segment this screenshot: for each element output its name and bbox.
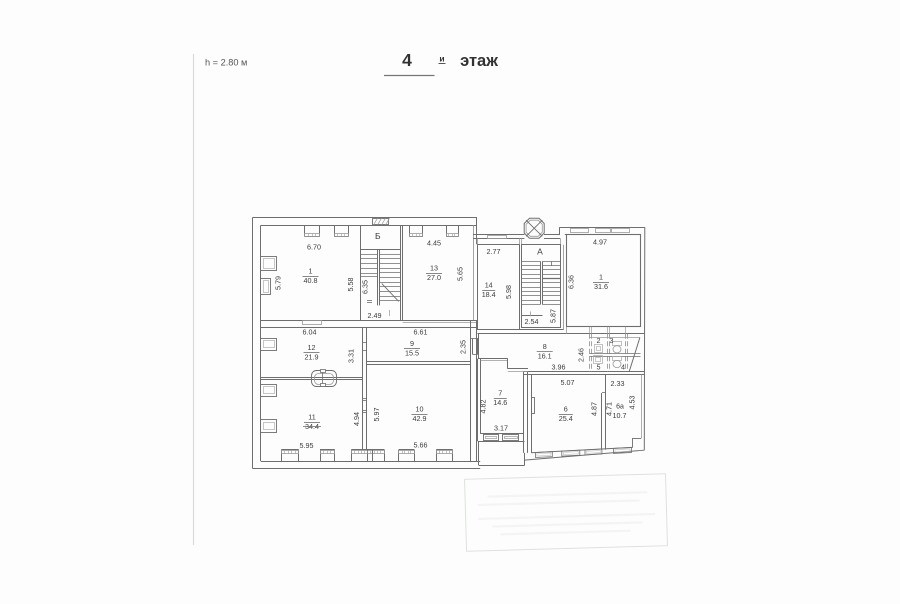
svg-text:2.77: 2.77: [487, 247, 501, 256]
svg-text:3.17: 3.17: [494, 424, 508, 433]
svg-text:10: 10: [416, 405, 424, 414]
svg-text:2.46: 2.46: [577, 348, 586, 362]
svg-text:2.54: 2.54: [525, 317, 539, 326]
svg-text:5.97: 5.97: [372, 408, 381, 422]
svg-text:12: 12: [308, 343, 316, 352]
svg-text:27.0: 27.0: [427, 273, 441, 282]
svg-text:этаж: этаж: [460, 52, 498, 70]
svg-text:7: 7: [498, 389, 502, 398]
svg-text:9: 9: [410, 339, 414, 348]
svg-text:16.1: 16.1: [538, 352, 552, 361]
svg-text:2: 2: [597, 336, 601, 345]
svg-text:31.6: 31.6: [594, 282, 608, 291]
svg-text:4: 4: [621, 363, 625, 372]
svg-text:6.35: 6.35: [361, 280, 370, 294]
svg-text:6а: 6а: [616, 404, 624, 411]
svg-text:4.87: 4.87: [590, 402, 599, 416]
svg-text:40.8: 40.8: [304, 276, 318, 285]
svg-text:14: 14: [485, 281, 493, 290]
svg-text:5.95: 5.95: [300, 441, 314, 450]
svg-text:15.5: 15.5: [405, 349, 419, 358]
svg-text:8: 8: [543, 342, 547, 351]
svg-text:3.31: 3.31: [347, 349, 356, 363]
svg-text:10.7: 10.7: [613, 411, 627, 420]
svg-text:1: 1: [599, 273, 603, 282]
svg-text:6.36: 6.36: [567, 275, 576, 289]
svg-text:А: А: [537, 247, 543, 257]
svg-text:3.96: 3.96: [552, 363, 566, 372]
svg-text:6.04: 6.04: [303, 328, 317, 337]
svg-text:5.65: 5.65: [456, 267, 465, 281]
svg-text:13: 13: [430, 264, 438, 273]
svg-text:4: 4: [402, 50, 412, 70]
svg-text:14.6: 14.6: [493, 398, 507, 407]
svg-text:5: 5: [597, 363, 601, 372]
svg-text:5.58: 5.58: [346, 278, 355, 292]
svg-text:2.49: 2.49: [368, 311, 382, 320]
svg-text:5.79: 5.79: [274, 276, 283, 290]
svg-text:3: 3: [610, 336, 614, 345]
svg-text:5.87: 5.87: [549, 309, 558, 323]
svg-text:4.94: 4.94: [352, 412, 361, 426]
svg-text:5.66: 5.66: [414, 441, 428, 450]
svg-text:4.45: 4.45: [427, 239, 441, 248]
svg-text:25.4: 25.4: [559, 414, 573, 423]
svg-text:4.53: 4.53: [628, 396, 637, 410]
svg-text:и: и: [439, 54, 444, 64]
svg-text:1: 1: [309, 267, 313, 276]
svg-text:Б: Б: [375, 231, 381, 241]
svg-text:42.9: 42.9: [413, 414, 427, 423]
svg-text:6.70: 6.70: [307, 243, 321, 252]
svg-text:6: 6: [564, 405, 568, 414]
svg-text:5.07: 5.07: [561, 378, 575, 387]
svg-text:18.4: 18.4: [482, 290, 496, 299]
svg-text:4.71: 4.71: [605, 402, 614, 416]
svg-text:2.35: 2.35: [459, 340, 468, 354]
svg-text:21.9: 21.9: [305, 353, 319, 362]
svg-text:4.97: 4.97: [593, 238, 607, 247]
svg-text:11: 11: [308, 413, 315, 422]
svg-text:6.61: 6.61: [414, 328, 428, 337]
svg-text:h = 2.80 м: h = 2.80 м: [205, 58, 247, 68]
svg-text:5.98: 5.98: [504, 285, 513, 299]
svg-text:4.82: 4.82: [479, 400, 488, 414]
svg-text:2.33: 2.33: [611, 379, 625, 388]
